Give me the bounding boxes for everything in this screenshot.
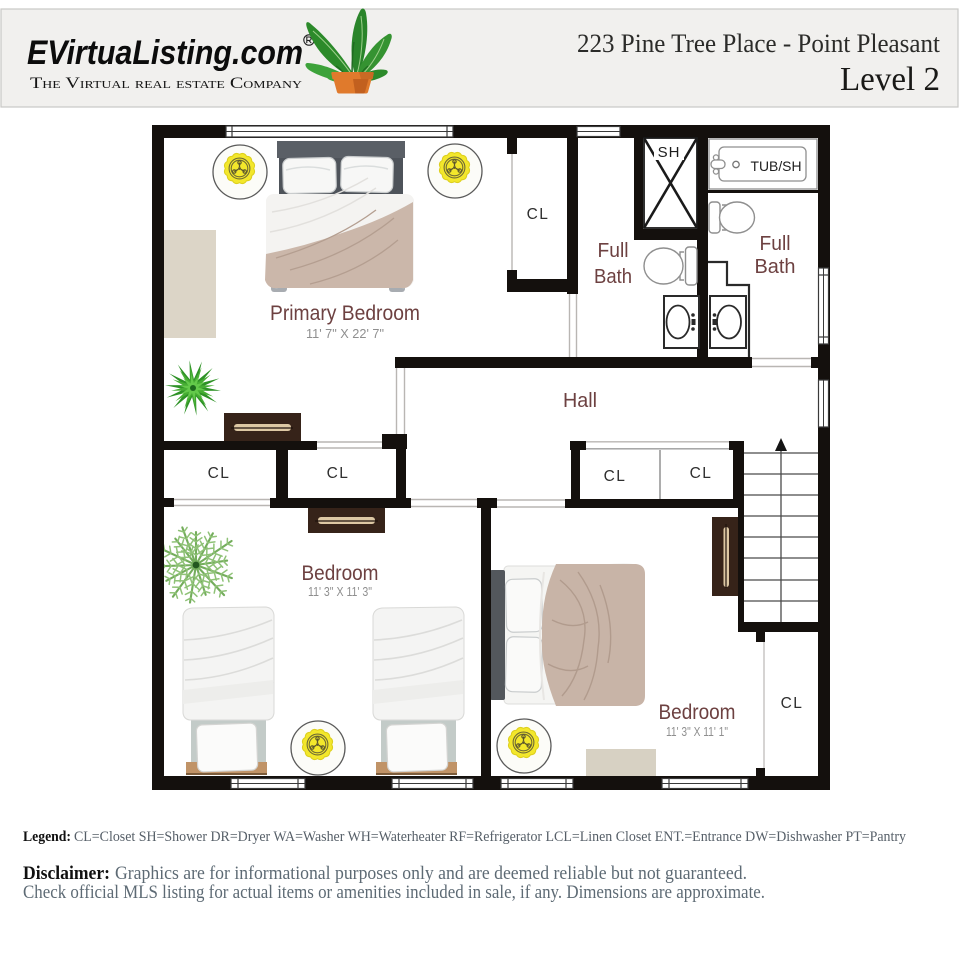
- svg-text:Bedroom: Bedroom: [659, 701, 736, 724]
- svg-text:CL: CL: [604, 468, 627, 485]
- svg-text:11' 3" X 11' 1": 11' 3" X 11' 1": [666, 724, 728, 739]
- svg-text:CL: CL: [208, 465, 231, 482]
- svg-text:Full: Full: [598, 240, 629, 262]
- svg-text:Disclaimer:: Disclaimer:: [23, 864, 110, 884]
- svg-text:Legend:: Legend:: [23, 829, 71, 845]
- svg-text:CL=Closet SH=Shower DR=Dryer: CL=Closet SH=Shower DR=Dryer WA=Washer W…: [74, 829, 906, 845]
- svg-text:Hall: Hall: [563, 390, 597, 412]
- svg-text:Graphics are for informational: Graphics are for informational purposes …: [115, 864, 747, 884]
- svg-text:CL: CL: [690, 465, 713, 482]
- svg-text:CL: CL: [781, 695, 804, 712]
- svg-text:CL: CL: [327, 465, 350, 482]
- svg-text:Bath: Bath: [755, 256, 796, 278]
- svg-text:Full: Full: [760, 233, 791, 255]
- svg-text:CL: CL: [527, 206, 550, 223]
- svg-text:TUB/SH: TUB/SH: [751, 158, 802, 174]
- svg-text:Level 2: Level 2: [840, 61, 940, 98]
- svg-text:Bedroom: Bedroom: [302, 562, 379, 585]
- svg-text:Bath: Bath: [594, 266, 632, 288]
- svg-text:Primary Bedroom: Primary Bedroom: [270, 302, 420, 325]
- svg-text:11' 3" X 11' 3": 11' 3" X 11' 3": [308, 584, 372, 599]
- svg-text:SH: SH: [658, 144, 681, 161]
- svg-text:11' 7" X 22' 7": 11' 7" X 22' 7": [306, 326, 384, 341]
- svg-text:The Virtual real estate Compan: The Virtual real estate Company: [30, 75, 302, 92]
- svg-text:223 Pine Tree Place - Point Pl: 223 Pine Tree Place - Point Pleasant: [577, 29, 941, 58]
- svg-text:Check official MLS listing for: Check official MLS listing for actual it…: [23, 883, 765, 903]
- svg-text:EVirtuaListing.com: EVirtuaListing.com: [27, 34, 303, 72]
